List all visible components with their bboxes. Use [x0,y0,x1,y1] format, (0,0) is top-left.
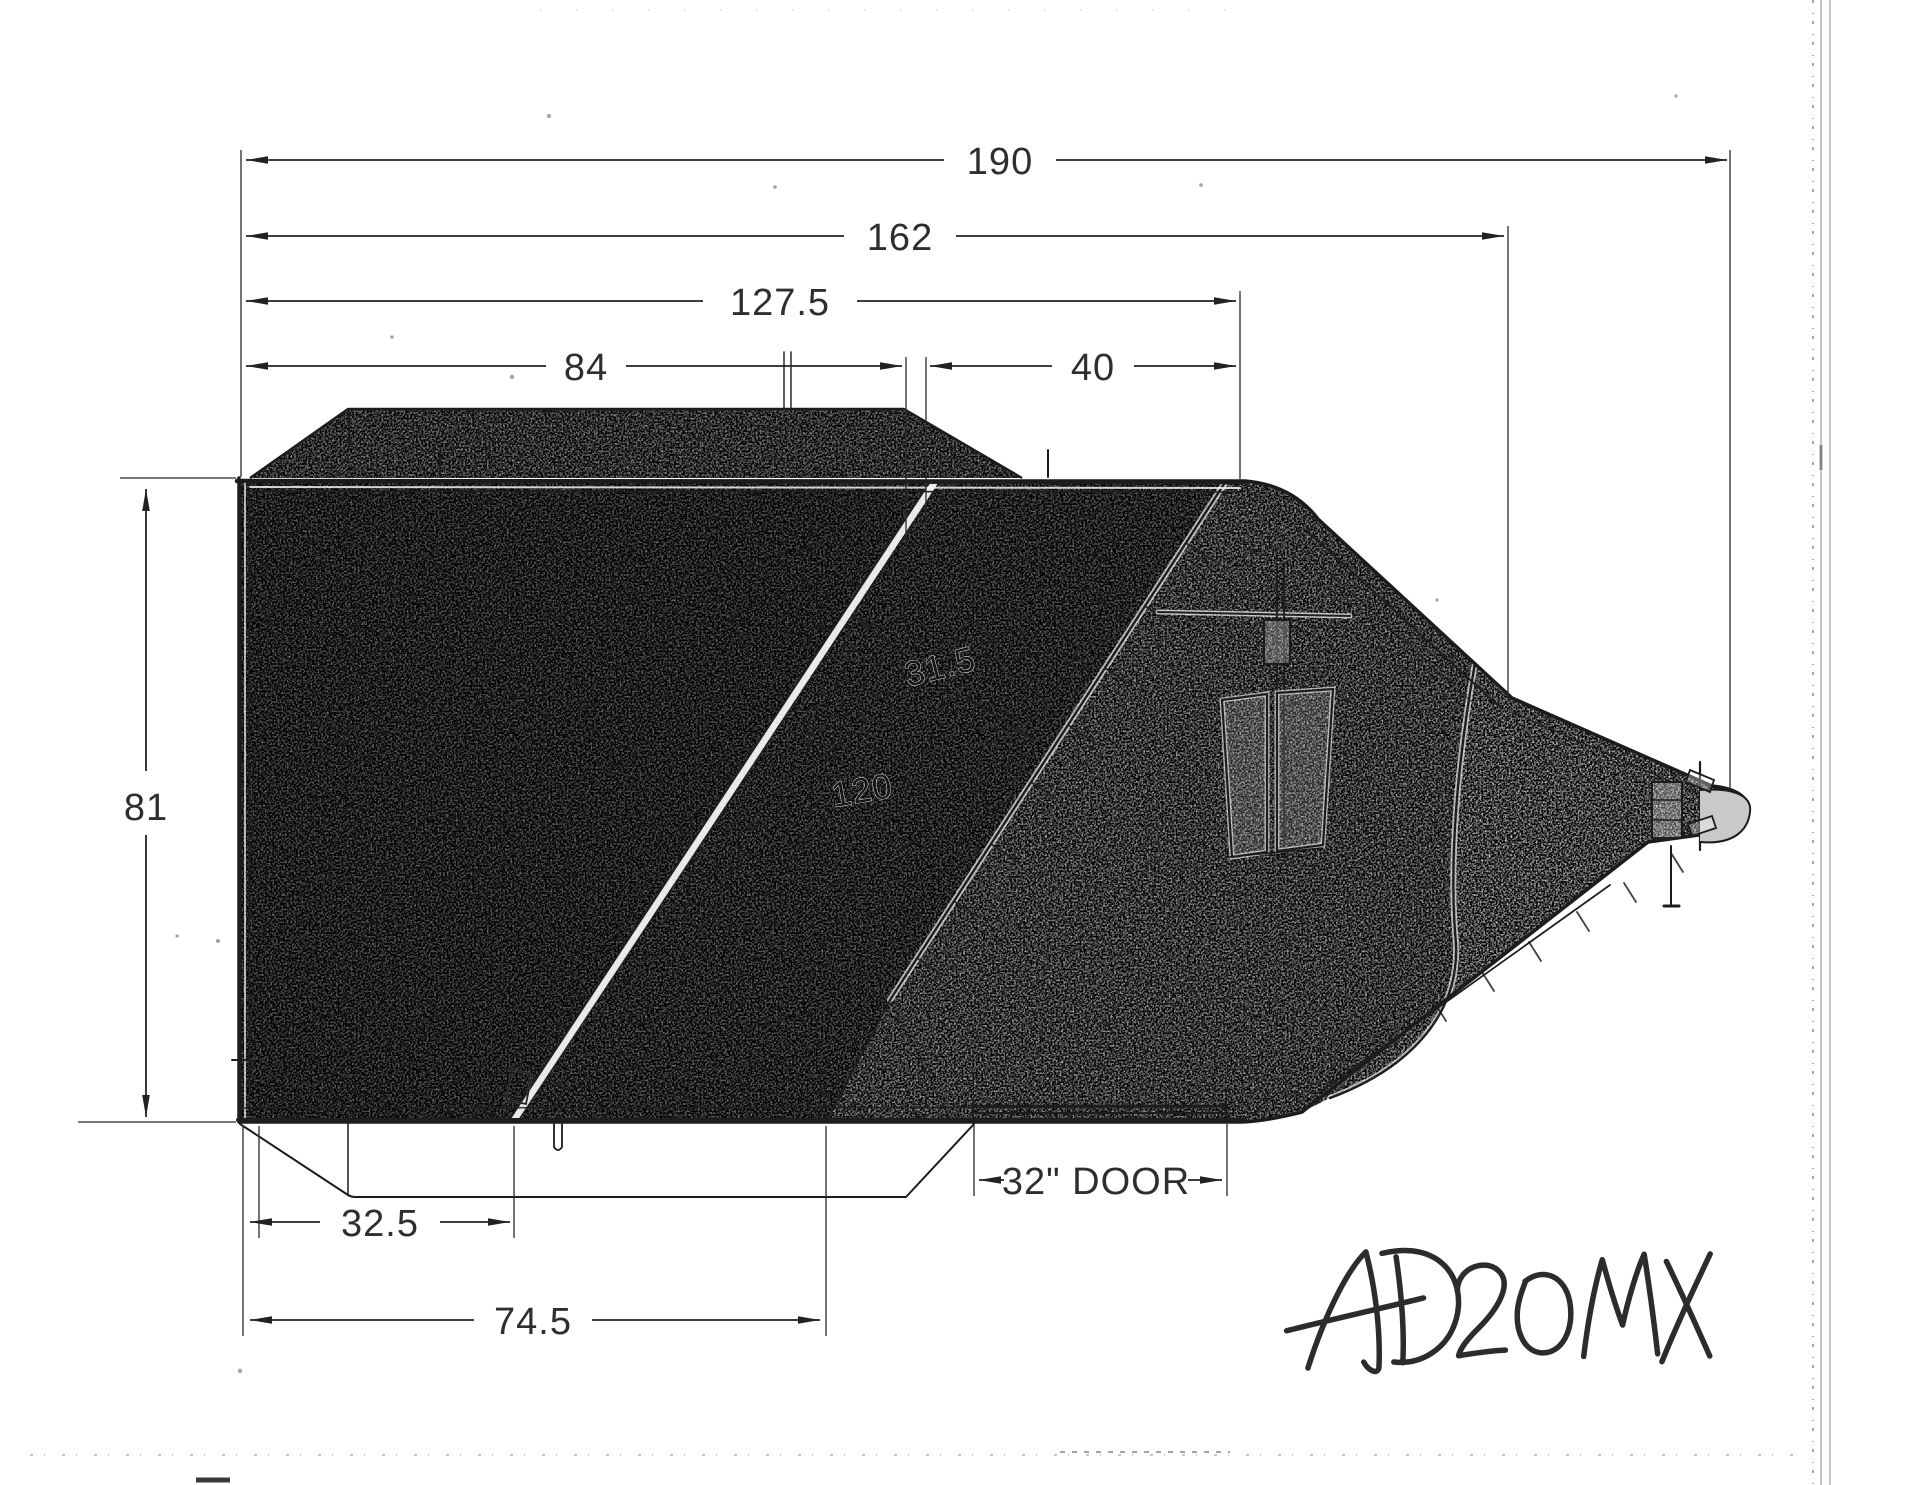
dim-label-overall-length: 190 [967,141,1033,183]
dim-label-deck-to-hitch: 162 [867,217,933,259]
top-rail-gap [250,487,1240,488]
skirt-left-diagonal [240,1124,348,1195]
top-rail-inner [250,491,1240,492]
model-number-text: AD20MX [1300,1270,1700,1382]
skirt-bottom-line [348,1195,906,1197]
dim-label-side-height: 81 [124,787,168,829]
lower-frame-skirt [240,1124,974,1197]
skirt-right-diagonal [906,1124,974,1197]
dim-label-upper-body: 127.5 [730,282,830,324]
trailer-drawing: 190 162 127.5 84 40 81 32.5 74.5 32" DOO… [0,0,1920,1485]
dim-label-front-slope-top: 40 [1071,347,1115,389]
coupler-cap [1700,790,1750,843]
dim-label-door-width: 32" DOOR [1002,1161,1190,1203]
underbody-hook [554,1124,562,1150]
scanned-drawing-page: 190 162 127.5 84 40 81 32.5 74.5 32" DOO… [0,0,1920,1485]
jack-right-panel [1277,689,1333,851]
coupler-bracket [1652,782,1682,838]
jack-top-bracket [1264,620,1290,664]
dim-label-tarp-top: 84 [564,347,608,389]
hitch-coupler [1652,762,1750,906]
dim-label-underframe: 74.5 [494,1301,572,1343]
dim-label-rear-frame: 32.5 [341,1203,419,1245]
